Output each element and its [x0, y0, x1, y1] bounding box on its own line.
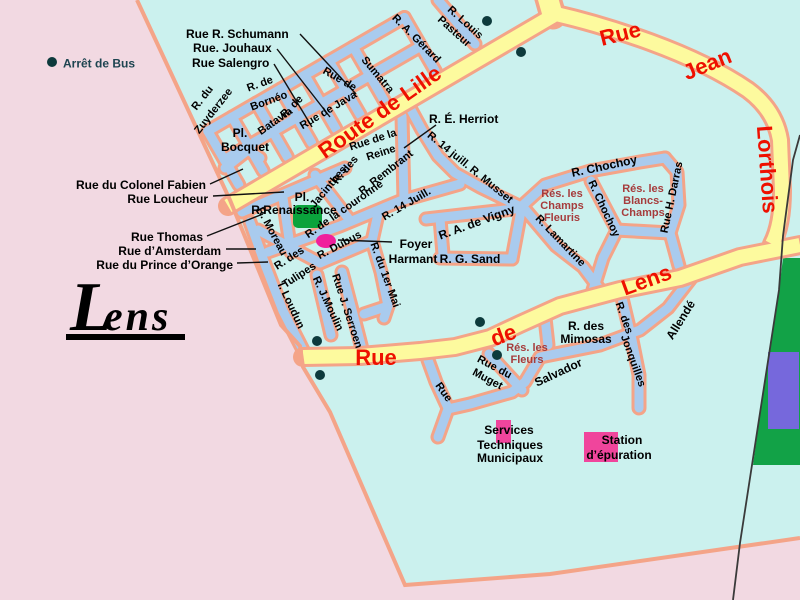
svg-text:Techniques: Techniques: [477, 438, 543, 452]
svg-text:Rue d’Amsterdam: Rue d’Amsterdam: [118, 244, 221, 258]
svg-text:Champs: Champs: [540, 200, 583, 212]
svg-text:Rue Loucheur: Rue Loucheur: [127, 192, 208, 206]
svg-text:Rés. les: Rés. les: [541, 188, 583, 200]
svg-text:Services: Services: [484, 423, 534, 437]
svg-text:ens: ens: [104, 294, 171, 340]
svg-text:Blancs-: Blancs-: [623, 195, 663, 207]
svg-text:Arrêt de Bus: Arrêt de Bus: [63, 57, 135, 71]
svg-text:Bocquet: Bocquet: [221, 140, 269, 154]
svg-text:Fleurs: Fleurs: [510, 354, 543, 366]
svg-text:Rue R. Schumann: Rue R. Schumann: [186, 27, 289, 41]
svg-text:Mimosas: Mimosas: [560, 332, 612, 346]
svg-text:R. G. Sand: R. G. Sand: [440, 252, 501, 266]
svg-text:Rue Salengro: Rue Salengro: [192, 56, 269, 70]
svg-text:Champs: Champs: [621, 207, 664, 219]
svg-text:Pl.: Pl.: [233, 126, 248, 140]
svg-text:Municipaux: Municipaux: [477, 451, 543, 465]
svg-text:R. des: R. des: [568, 319, 604, 333]
svg-text:R. É. Herriot: R. É. Herriot: [429, 111, 498, 126]
svg-text:Pl.: Pl.: [295, 190, 310, 204]
svg-text:Rue du Colonel Fabien: Rue du Colonel Fabien: [76, 178, 206, 192]
svg-text:Harmant: Harmant: [389, 252, 438, 266]
svg-text:Rue: Rue: [355, 345, 397, 370]
svg-text:Rue Thomas: Rue Thomas: [131, 230, 203, 244]
svg-text:Rue du Prince d’Orange: Rue du Prince d’Orange: [96, 258, 233, 272]
svg-text:Station: Station: [602, 433, 643, 447]
svg-text:d’épuration: d’épuration: [586, 448, 651, 462]
svg-text:Foyer: Foyer: [400, 237, 433, 251]
svg-text:Rés. les: Rés. les: [506, 342, 548, 354]
svg-text:Fleuris: Fleuris: [544, 212, 580, 224]
svg-text:Rue. Jouhaux: Rue. Jouhaux: [193, 41, 272, 55]
svg-text:Rés. les: Rés. les: [622, 183, 664, 195]
